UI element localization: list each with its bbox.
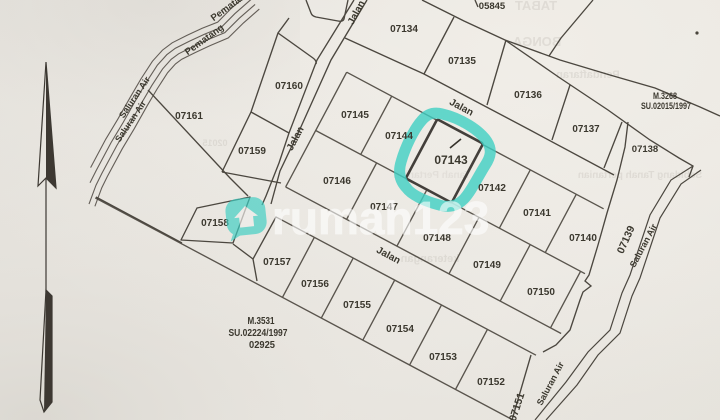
svg-text:M.3531: M.3531 <box>248 316 275 327</box>
svg-text:07141: 07141 <box>523 208 551 219</box>
svg-text:07159: 07159 <box>238 146 266 157</box>
svg-text:02015: 02015 <box>202 138 227 148</box>
svg-text:07137: 07137 <box>572 124 600 135</box>
svg-text:07135: 07135 <box>448 56 476 67</box>
svg-text:07140: 07140 <box>569 233 597 244</box>
svg-text:07150: 07150 <box>527 287 555 298</box>
svg-text:BONGA: BONGA <box>512 34 561 49</box>
svg-text:07153: 07153 <box>429 352 457 363</box>
svg-text:SU.02015/1997: SU.02015/1997 <box>641 101 691 112</box>
svg-text:SU.02224/1997: SU.02224/1997 <box>229 328 288 339</box>
svg-text:07145: 07145 <box>341 110 369 121</box>
svg-text:07156: 07156 <box>301 279 329 290</box>
svg-text:07136: 07136 <box>514 90 542 101</box>
svg-text:07149: 07149 <box>473 260 501 271</box>
svg-text:rumah123: rumah123 <box>272 192 489 244</box>
svg-text:07138: 07138 <box>632 144 658 155</box>
svg-text:02925: 02925 <box>249 340 275 351</box>
svg-text:07160: 07160 <box>275 81 303 92</box>
svg-text:TABAT: TABAT <box>515 0 557 13</box>
svg-text:07155: 07155 <box>343 300 371 311</box>
svg-text:07161: 07161 <box>175 111 203 122</box>
svg-text:07146: 07146 <box>323 176 351 187</box>
svg-text:07143: 07143 <box>434 153 468 167</box>
svg-text:07134: 07134 <box>390 24 418 35</box>
svg-text:07154: 07154 <box>386 324 414 335</box>
svg-text:07152: 07152 <box>477 377 505 388</box>
svg-text:07157: 07157 <box>263 257 291 268</box>
svg-text:07158: 07158 <box>201 218 229 229</box>
svg-text:07144: 07144 <box>385 131 413 142</box>
svg-text:05845: 05845 <box>479 1 506 12</box>
